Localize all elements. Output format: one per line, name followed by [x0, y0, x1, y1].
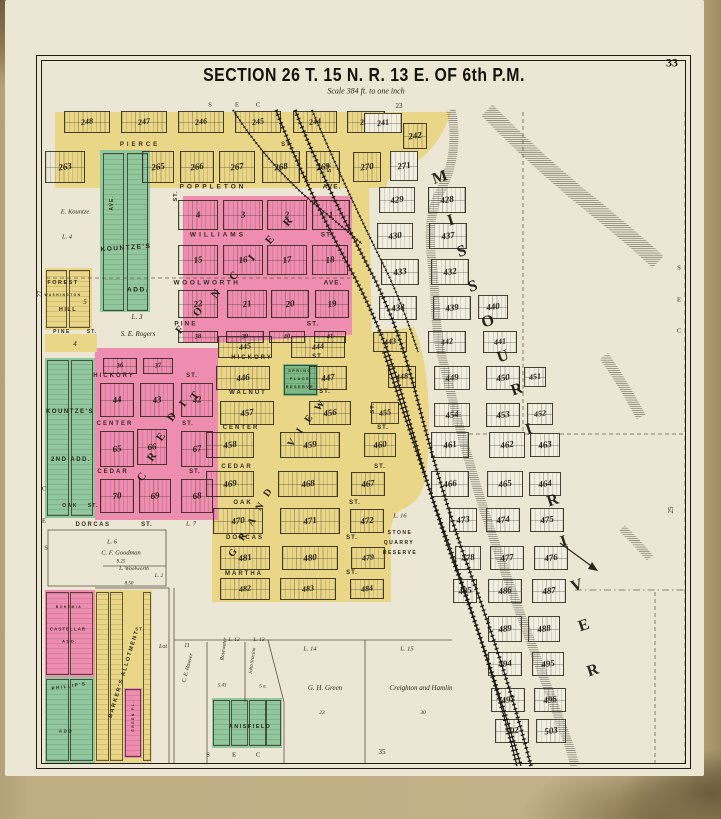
- page-number: 33: [666, 56, 678, 71]
- atlas-page: 2482472462452442432422412632652662672682…: [0, 0, 721, 819]
- map-border-inner: [41, 60, 686, 764]
- page-title: SECTION 26 T. 15 N. R. 13 E. OF 6th P.M.: [203, 65, 525, 86]
- scale-note: Scale 384 ft. to one inch: [327, 87, 404, 96]
